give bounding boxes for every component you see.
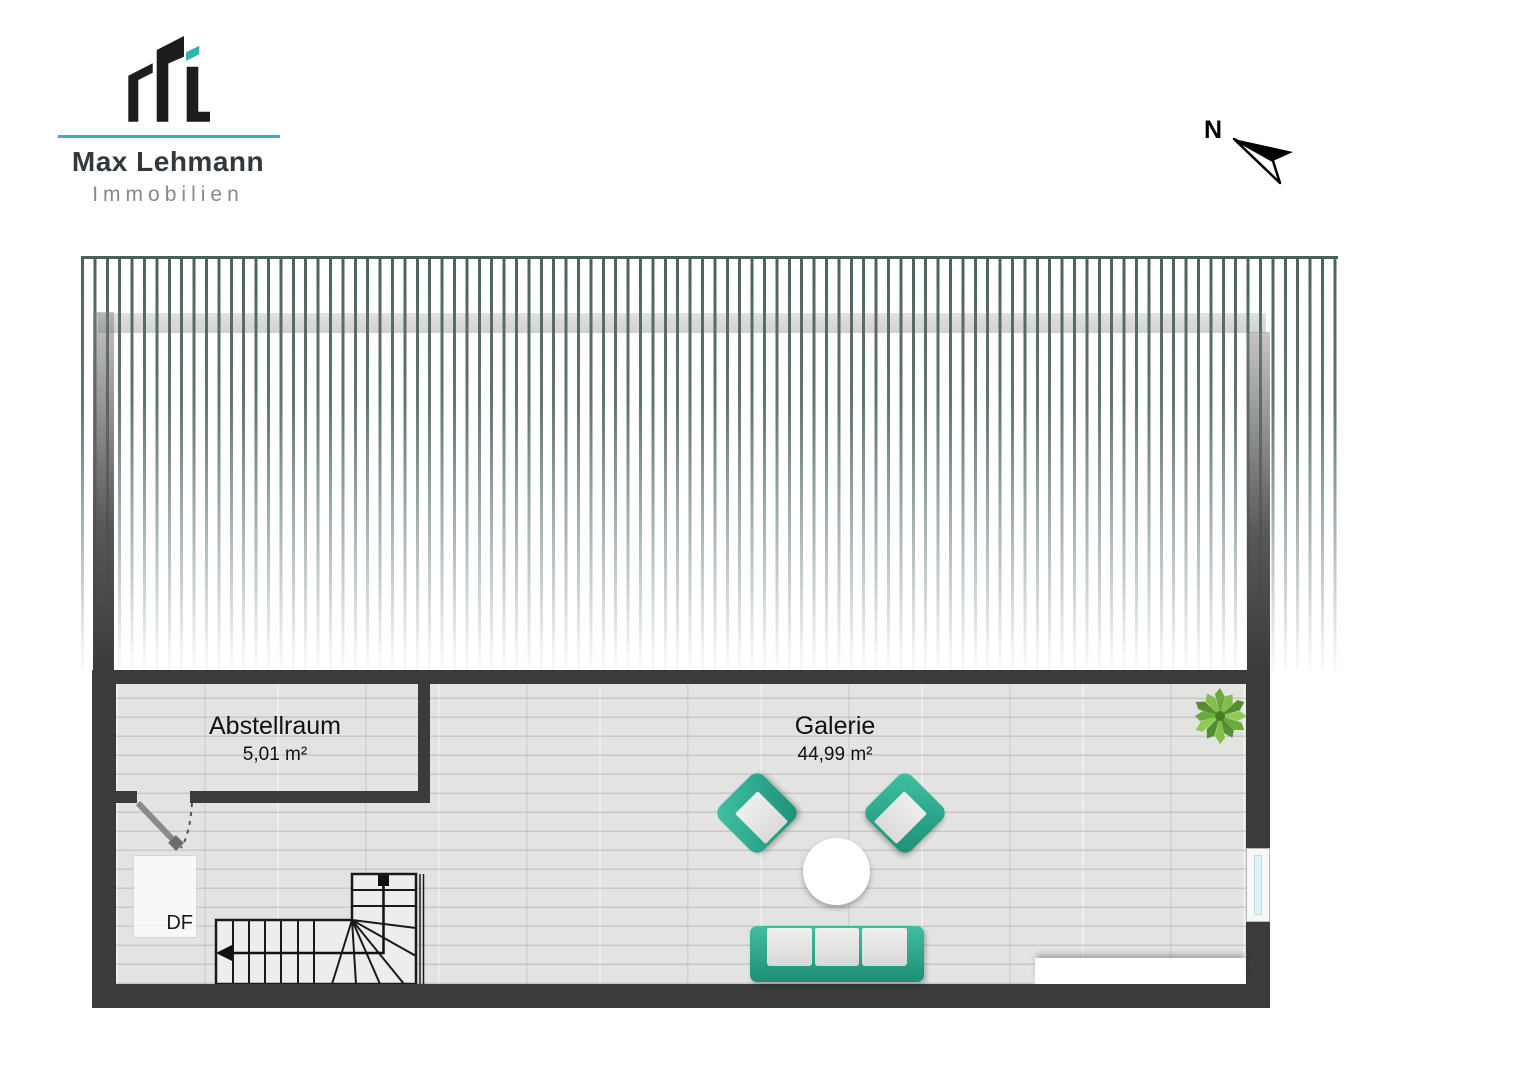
sofa-cushion bbox=[815, 928, 860, 966]
door-swing bbox=[128, 796, 200, 860]
plant bbox=[1190, 686, 1250, 746]
sideboard bbox=[1035, 958, 1246, 984]
abstellraum-wall-east bbox=[418, 684, 430, 803]
floor-plan-page: Max Lehmann Immobilien N DF bbox=[0, 0, 1528, 1080]
sofa bbox=[750, 926, 924, 982]
room-label-galerie: Galerie 44,99 m² bbox=[735, 712, 935, 766]
logo-mark-icon bbox=[124, 31, 214, 126]
sofa-cushion bbox=[862, 928, 907, 966]
logo-divider bbox=[58, 135, 280, 138]
company-name: Max Lehmann bbox=[38, 146, 298, 178]
room-name: Abstellraum bbox=[175, 712, 375, 741]
faded-east-wall bbox=[1247, 332, 1270, 670]
wall-bottom bbox=[92, 984, 1270, 1008]
wall-right-lower bbox=[1246, 922, 1270, 1008]
wall-top bbox=[92, 670, 1270, 684]
roof-slope-hatch bbox=[81, 256, 1338, 670]
window-glass bbox=[1254, 855, 1262, 915]
sofa-cushion bbox=[767, 928, 812, 966]
room-area: 44,99 m² bbox=[735, 744, 935, 766]
stairs bbox=[214, 872, 426, 984]
round-table bbox=[803, 838, 870, 905]
faded-west-wall bbox=[93, 312, 114, 670]
room-name: Galerie bbox=[735, 712, 935, 741]
north-label: N bbox=[1204, 116, 1222, 145]
window-east bbox=[1246, 848, 1270, 922]
stair-start-marker bbox=[378, 875, 389, 886]
north-arrow-icon bbox=[1230, 130, 1300, 190]
sofa-cushions bbox=[767, 928, 907, 966]
roof-window: DF bbox=[133, 855, 197, 938]
wall-left bbox=[92, 670, 116, 1008]
logo-text-block: Max Lehmann Immobilien bbox=[38, 146, 298, 207]
room-label-abstellraum: Abstellraum 5,01 m² bbox=[175, 712, 375, 766]
company-tagline: Immobilien bbox=[38, 183, 298, 207]
roof-hatch-fade bbox=[81, 256, 1338, 670]
abstellraum-wall-south bbox=[190, 791, 418, 803]
roof-window-label: DF bbox=[166, 912, 193, 935]
room-area: 5,01 m² bbox=[175, 744, 375, 766]
